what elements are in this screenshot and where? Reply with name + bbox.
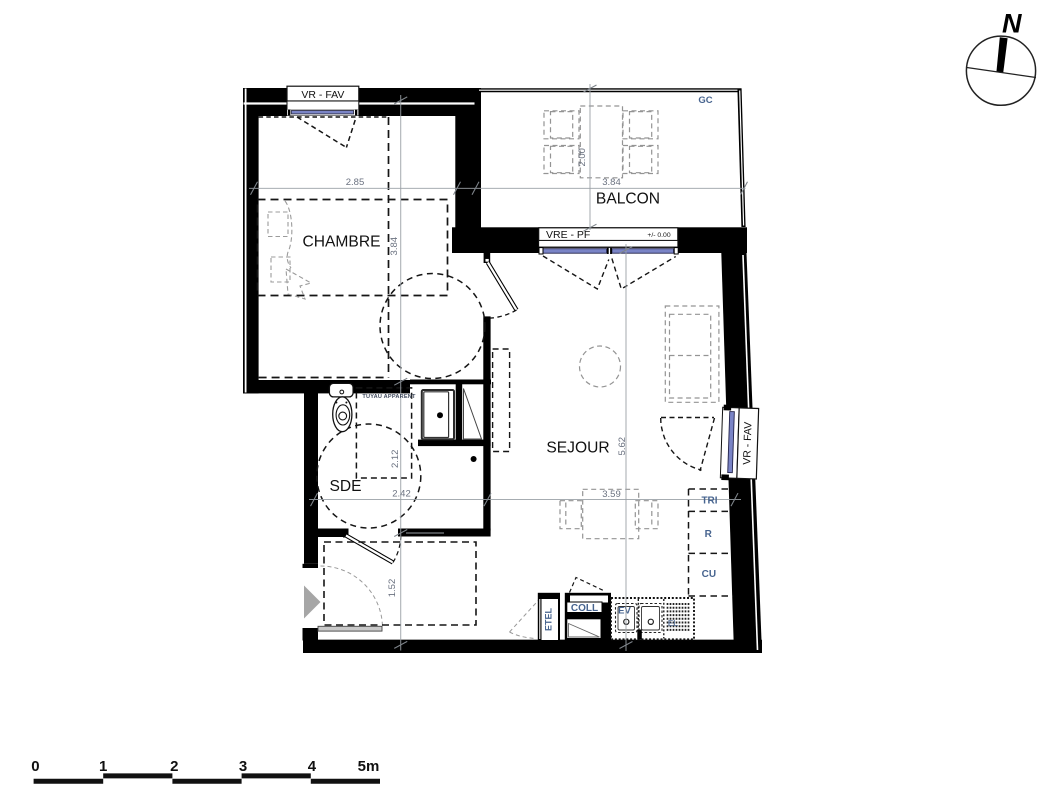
svg-text:EL: EL [668, 619, 678, 628]
svg-text:3: 3 [239, 758, 247, 775]
svg-text:SDE: SDE [329, 478, 361, 495]
svg-text:2.00: 2.00 [577, 148, 588, 167]
svg-text:TUYAU APPARENT: TUYAU APPARENT [362, 394, 416, 400]
svg-text:SEJOUR: SEJOUR [546, 439, 609, 456]
svg-text:ETEL: ETEL [544, 608, 554, 632]
svg-text:2.85: 2.85 [346, 177, 365, 188]
svg-text:3.84: 3.84 [602, 177, 621, 188]
svg-text:5.62: 5.62 [617, 437, 628, 456]
svg-text:3.84: 3.84 [389, 237, 400, 256]
svg-text:BALCON: BALCON [596, 190, 660, 207]
svg-text:GC: GC [698, 95, 712, 106]
svg-text:0: 0 [31, 758, 39, 775]
svg-text:R: R [705, 529, 713, 540]
svg-text:N: N [1002, 9, 1022, 39]
svg-text:CU: CU [702, 569, 716, 580]
svg-text:2.42: 2.42 [392, 488, 411, 499]
svg-text:CHAMBRE: CHAMBRE [303, 233, 381, 250]
svg-text:2.12: 2.12 [390, 450, 401, 469]
svg-text:3.59: 3.59 [602, 489, 621, 500]
svg-text:2: 2 [170, 758, 178, 775]
svg-text:4: 4 [308, 758, 317, 775]
svg-text:+/- 0.00: +/- 0.00 [647, 232, 670, 239]
svg-text:1: 1 [99, 758, 107, 775]
svg-text:VR - FAV: VR - FAV [301, 89, 344, 101]
svg-text:COLL: COLL [571, 603, 598, 614]
svg-text:5m: 5m [358, 758, 380, 775]
svg-text:TRI: TRI [701, 496, 717, 507]
svg-text:VR - FAV: VR - FAV [741, 422, 754, 465]
svg-text:EV: EV [618, 606, 631, 617]
svg-text:1.52: 1.52 [387, 579, 398, 598]
